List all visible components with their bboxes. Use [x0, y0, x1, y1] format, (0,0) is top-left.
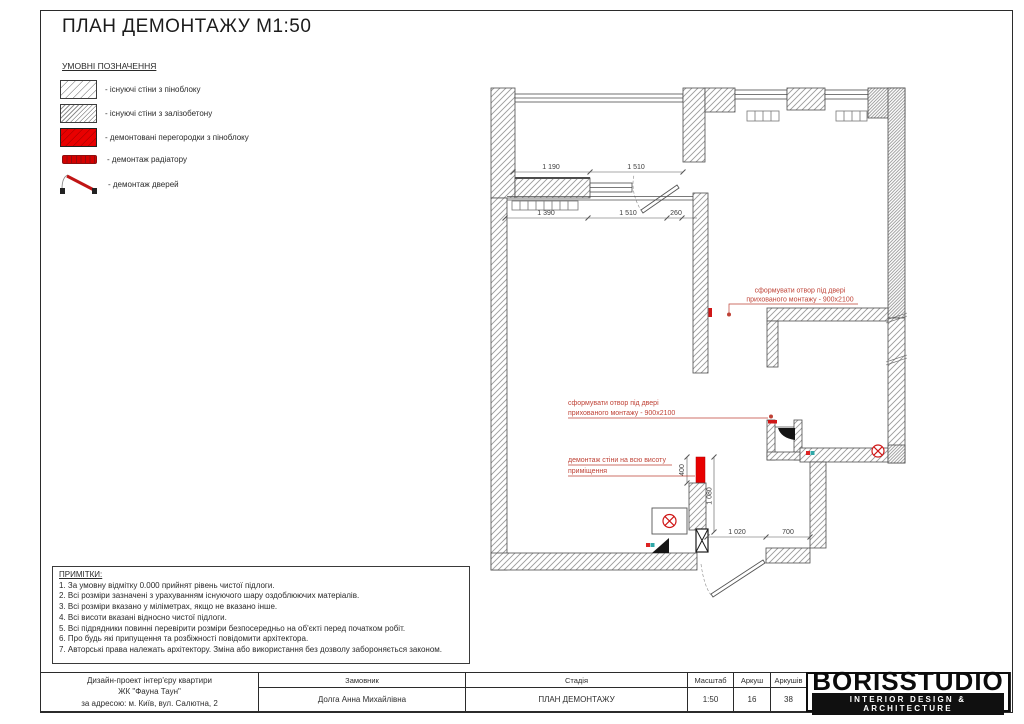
svg-text:1 020: 1 020 [728, 529, 746, 536]
sheet-value: 16 [734, 688, 770, 711]
svg-text:сформувати отвор під двері: сформувати отвор під двері [568, 399, 659, 407]
project-line: за адресою: м. Київ, вул. Салютна, 2 [81, 698, 218, 710]
svg-text:1 510: 1 510 [619, 210, 637, 217]
door-demolition-icon [58, 171, 100, 197]
legend-label: - існуючі стіни з залізобетону [105, 109, 212, 118]
svg-text:приміщення: приміщення [568, 467, 607, 475]
stage-value: ПЛАН ДЕМОНТАЖУ [466, 688, 687, 711]
scale-cell: Масштаб 1:50 [688, 673, 734, 711]
scale-label: Масштаб [688, 673, 733, 688]
note-line: 1. За умовну відмітку 0.000 прийнят ріве… [59, 581, 463, 592]
legend-header: УМОВНІ ПОЗНАЧЕННЯ [62, 61, 156, 71]
note-line: 7. Авторські права належать архітектору.… [59, 645, 463, 656]
note-line: 6. Про будь які припущення та розбіжност… [59, 634, 463, 645]
notes-header: ПРИМІТКИ: [59, 570, 463, 581]
radiator-swatch [62, 155, 97, 164]
note-line: 5. Всі підрядники повинні перевірити роз… [59, 624, 463, 635]
page-title: ПЛАН ДЕМОНТАЖУ М1:50 [62, 16, 311, 38]
note-line: 2. Всі розміри зазначені з урахуванням і… [59, 591, 463, 602]
legend-label: - існуючі стіни з піноблоку [105, 85, 201, 94]
annotation-demolish-wall: демонтаж стіни на всю висоту приміщення [568, 456, 695, 476]
demolish-symbol-hall [663, 515, 676, 528]
demolish-symbol-entry [872, 445, 884, 457]
drawing-sheet: ПЛАН ДЕМОНТАЖУ М1:50 УМОВНІ ПОЗНАЧЕННЯ -… [0, 0, 1024, 724]
sheets-value: 38 [771, 688, 806, 711]
red-partition-swatch [60, 128, 97, 147]
svg-text:1 390: 1 390 [537, 210, 555, 217]
entry-walls [766, 420, 905, 563]
logo-text: BORISSTUDIO [812, 669, 1004, 693]
entrance-door [701, 560, 765, 597]
hatch-dense-swatch [60, 104, 97, 123]
project-line: ЖК "Фауна Таун" [118, 686, 181, 698]
legend-item-demolished-partitions: - демонтовані перегородки з піноблоку [60, 128, 249, 147]
corridor-wall [767, 308, 888, 367]
sheet-number-cell: Аркуш 16 [734, 673, 771, 711]
legend-label: - демонтаж дверей [108, 180, 179, 189]
svg-text:1 510: 1 510 [627, 164, 645, 171]
opening-marker-1 [709, 308, 713, 317]
svg-text:прихованого монтажу - 900х2100: прихованого монтажу - 900х2100 [746, 297, 853, 304]
demolition-zone [646, 457, 708, 553]
project-info-cell: Дизайн-проект інтер'єру квартири ЖК "Фау… [41, 673, 259, 711]
svg-text:сформувати отвор під двері: сформувати отвор під двері [755, 287, 846, 295]
studio-logo: BORISSTUDIO INTERIOR DESIGN & ARCHITECTU… [806, 672, 1010, 712]
annotation-opening-2: сформувати отвор під двері прихованого м… [568, 399, 777, 424]
opening-marker-2 [768, 420, 777, 424]
client-value: Долга Анна Михайлівна [259, 688, 465, 711]
balcony-door [633, 175, 679, 213]
note-line: 4. Всі висоти вказані відносно чистої пі… [59, 613, 463, 624]
middle-wall [693, 193, 712, 373]
sheets-label: Аркушів [771, 673, 806, 688]
corner-marker [652, 538, 669, 553]
legend-item-door-demolition: - демонтаж дверей [58, 171, 179, 197]
note-line: 3. Всі розміри вказано у міліметрах, якщ… [59, 602, 463, 613]
shaft-marker [778, 428, 795, 440]
stage-cell: Стадія ПЛАН ДЕМОНТАЖУ [466, 673, 688, 711]
scale-value: 1:50 [688, 688, 733, 711]
demolished-wall-segment [696, 457, 705, 483]
title-block: Дизайн-проект інтер'єру квартири ЖК "Фау… [40, 672, 1011, 712]
sheets-total-cell: Аркушів 38 [771, 673, 807, 711]
legend-item-concrete-walls: - існуючі стіни з залізобетону [60, 104, 212, 123]
legend-label: - демонтовані перегородки з піноблоку [105, 133, 249, 142]
dimensions: 1 190 1 510 1 390 1 510 260 400 1 080 1 … [503, 164, 813, 540]
client-cell: Замовник Долга Анна Михайлівна [259, 673, 466, 711]
notes-box: ПРИМІТКИ: 1. За умовну відмітку 0.000 пр… [52, 566, 470, 664]
floor-plan: 1 190 1 510 1 390 1 510 260 400 1 080 1 … [440, 75, 940, 625]
client-label: Замовник [259, 673, 465, 688]
stage-label: Стадія [466, 673, 687, 688]
legend-item-radiator-demolition: - демонтаж радіатору [60, 155, 187, 164]
svg-text:260: 260 [670, 210, 682, 217]
legend-label: - демонтаж радіатору [107, 155, 187, 164]
hatch-light-swatch [60, 80, 97, 99]
svg-text:1 190: 1 190 [542, 164, 560, 171]
legend-item-foam-walls: - існуючі стіни з піноблоку [60, 80, 201, 99]
loggia-walls [491, 88, 705, 198]
svg-text:демонтаж стіни на всю висоту: демонтаж стіни на всю висоту [568, 456, 666, 464]
svg-text:400: 400 [679, 464, 686, 476]
project-line: Дизайн-проект інтер'єру квартири [87, 675, 212, 687]
logo-tagline: INTERIOR DESIGN & ARCHITECTURE [812, 693, 1004, 715]
svg-text:прихованого монтажу - 900х2100: прихованого монтажу - 900х2100 [568, 410, 675, 417]
sheet-label: Аркуш [734, 673, 770, 688]
svg-text:700: 700 [782, 529, 794, 536]
right-room-walls [705, 88, 907, 463]
svg-text:1 080: 1 080 [707, 487, 714, 505]
